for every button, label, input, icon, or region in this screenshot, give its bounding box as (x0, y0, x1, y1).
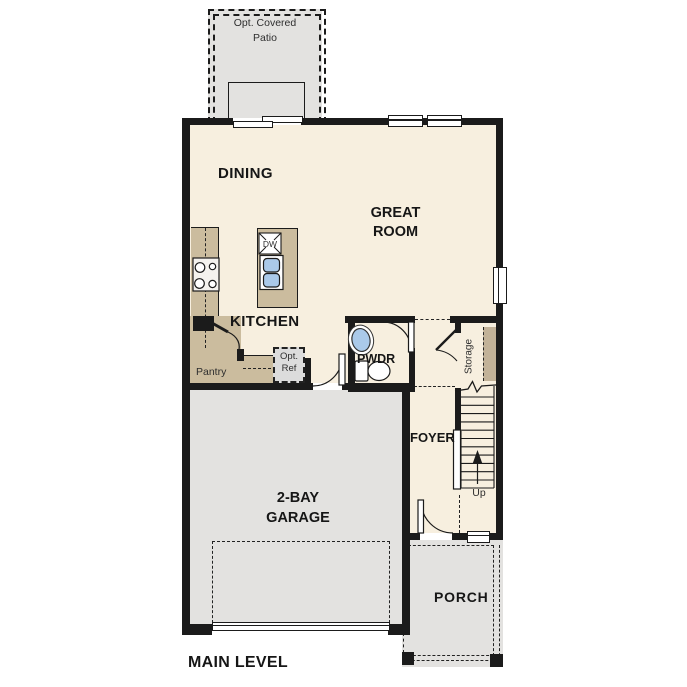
garage-label: 2-BAY GARAGE (252, 489, 344, 528)
garage-label-line1: 2-BAY (277, 490, 319, 506)
opt-ref-label: Opt. Ref (273, 351, 305, 375)
great-room-label-line1: GREAT (371, 205, 421, 221)
pantry-label: Pantry (196, 366, 226, 378)
plan-title: MAIN LEVEL (188, 654, 288, 672)
floor-plan: DW Opt. Covered Patio DINING GREAT ROOM … (0, 0, 687, 687)
up-label: Up (469, 487, 489, 499)
opt-ref-label-line1: Opt. (280, 351, 298, 362)
front-door (418, 500, 453, 533)
kitchen-label: KITCHEN (230, 313, 299, 330)
great-room-label-line2: ROOM (373, 224, 418, 240)
garage-entry-door (313, 354, 345, 386)
garage-label-line2: GARAGE (266, 510, 330, 526)
plan-symbols: DW (0, 0, 687, 687)
range-cooktop (193, 258, 219, 291)
great-room-label: GREAT ROOM (358, 204, 433, 242)
storage-door (436, 330, 457, 361)
opt-ref-label-line2: Ref (282, 363, 297, 374)
dishwasher: DW (259, 233, 281, 254)
dining-label: DINING (218, 165, 273, 182)
island-sink (260, 256, 283, 290)
patio-label-line1: Opt. Covered (234, 17, 296, 29)
stairs-break-line (455, 382, 502, 393)
pwdr-door (383, 322, 414, 352)
patio-label-line2: Patio (253, 32, 277, 44)
pwdr-label: PWDR (357, 352, 395, 366)
storage-label: Storage (464, 332, 477, 382)
patio-label: Opt. Covered Patio (215, 16, 315, 45)
dishwasher-label: DW (263, 239, 277, 249)
foyer-label: FOYER (410, 430, 455, 445)
porch-label: PORCH (434, 589, 489, 605)
